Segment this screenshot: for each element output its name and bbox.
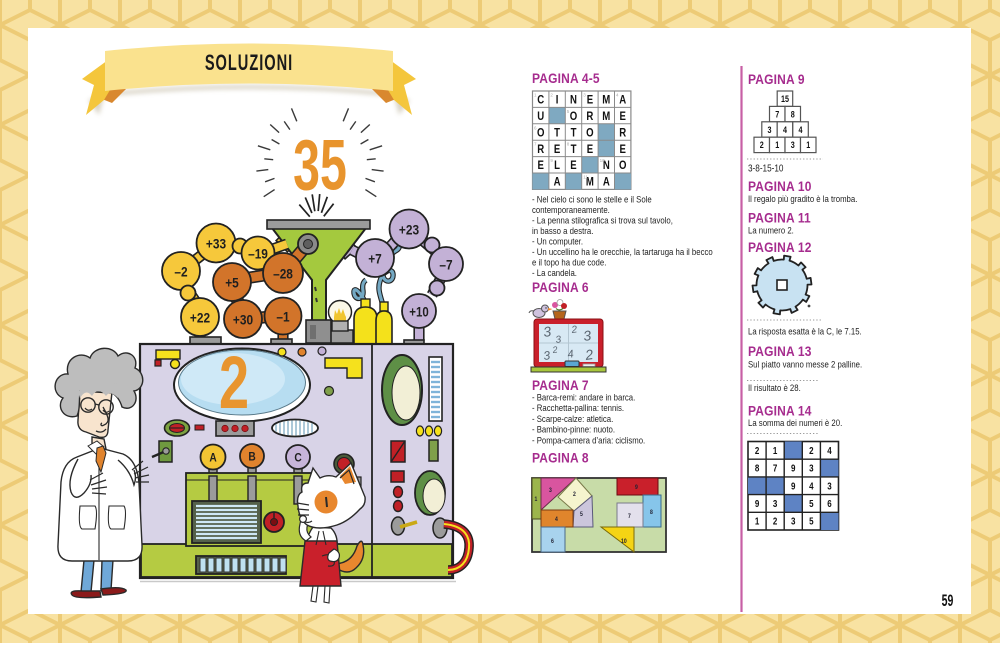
svg-text:PAGINA 8: PAGINA 8	[532, 450, 589, 466]
svg-text:PAGINA 10: PAGINA 10	[748, 178, 812, 194]
svg-text:- Pompa-camera d’aria: ciclism: - Pompa-camera d’aria: ciclismo.	[532, 435, 645, 446]
svg-text:A: A	[209, 452, 216, 465]
svg-text:PAGINA 9: PAGINA 9	[748, 71, 805, 87]
svg-text:U: U	[537, 110, 544, 123]
svg-text:8: 8	[791, 110, 795, 120]
svg-text:1: 1	[535, 497, 538, 503]
svg-text:2: 2	[773, 516, 777, 527]
svg-text:3: 3	[549, 488, 552, 494]
svg-text:- Un computer.: - Un computer.	[532, 236, 583, 247]
svg-text:+22: +22	[190, 310, 210, 326]
svg-text:E: E	[537, 159, 543, 172]
svg-text:PAGINA 13: PAGINA 13	[748, 343, 812, 359]
svg-text:4: 4	[809, 480, 813, 491]
svg-text:PAGINA 12: PAGINA 12	[748, 239, 812, 255]
svg-text:R: R	[537, 143, 544, 156]
svg-text:1: 1	[775, 140, 779, 150]
svg-text:1: 1	[755, 516, 759, 527]
svg-text:+5: +5	[225, 275, 239, 291]
svg-text:O: O	[586, 126, 593, 139]
svg-text:+33: +33	[206, 236, 226, 252]
svg-text:PAGINA 4-5: PAGINA 4-5	[532, 70, 600, 86]
svg-text:- La penna stilografica si tro: - La penna stilografica si trova sul tav…	[532, 215, 673, 226]
svg-text:E: E	[570, 159, 576, 172]
svg-text:- Barca-remi: andare in barca.: - Barca-remi: andare in barca.	[532, 392, 635, 403]
svg-text:in basso a destra.: in basso a destra.	[532, 225, 593, 236]
svg-text:2: 2	[219, 341, 249, 424]
svg-text:O: O	[619, 159, 626, 172]
svg-text:B: B	[248, 451, 255, 464]
svg-text:5: 5	[809, 516, 813, 527]
svg-text:9: 9	[755, 498, 759, 509]
svg-text:4: 4	[827, 445, 831, 456]
svg-text:- Un uccellino ha le orecchie,: - Un uccellino ha le orecchie, la tartar…	[532, 246, 713, 257]
svg-text:e il topo ha due code.: e il topo ha due code.	[532, 257, 606, 268]
svg-text:7: 7	[628, 514, 631, 520]
svg-text:R: R	[586, 110, 593, 123]
svg-text:T: T	[571, 126, 577, 139]
svg-text:- La candela.: - La candela.	[532, 267, 577, 278]
svg-text:Sul piatto vanno messe 2 palli: Sul piatto vanno messe 2 palline.	[748, 359, 862, 370]
svg-text:2: 2	[760, 140, 764, 150]
svg-text:9: 9	[791, 463, 795, 474]
svg-text:–1: –1	[276, 309, 289, 325]
svg-text:E: E	[619, 143, 625, 156]
svg-text:8: 8	[755, 463, 759, 474]
svg-text:2: 2	[809, 445, 813, 456]
svg-text:3: 3	[791, 140, 795, 150]
svg-text:La numero 2.: La numero 2.	[748, 225, 794, 236]
svg-text:- Racchetta-pallina: tennis.: - Racchetta-pallina: tennis.	[532, 402, 624, 413]
svg-text:5: 5	[580, 512, 583, 518]
svg-text:3: 3	[767, 125, 771, 135]
svg-text:9: 9	[791, 480, 795, 491]
svg-text:E: E	[554, 143, 560, 156]
svg-text:6: 6	[551, 539, 554, 545]
svg-text:3: 3	[773, 498, 777, 509]
svg-text:5: 5	[809, 498, 813, 509]
svg-text:O: O	[570, 110, 577, 123]
svg-text:15: 15	[781, 94, 789, 104]
svg-text:7: 7	[775, 110, 779, 120]
svg-text:59: 59	[942, 590, 954, 609]
svg-text:La risposta esatta è la C, le: La risposta esatta è la C, le 7.15.	[748, 326, 862, 337]
svg-text:2: 2	[573, 492, 576, 498]
svg-text:I: I	[556, 94, 559, 107]
svg-text:A: A	[603, 176, 610, 189]
svg-text:R: R	[619, 126, 626, 139]
svg-text:M: M	[602, 94, 610, 107]
svg-text:N: N	[570, 94, 577, 107]
svg-text:E: E	[619, 110, 625, 123]
svg-text:–28: –28	[273, 266, 293, 282]
svg-text:35: 35	[293, 125, 347, 205]
svg-text:Il regalo più gradito è la tro: Il regalo più gradito è la tromba.	[748, 193, 857, 204]
svg-text:3: 3	[827, 480, 831, 491]
svg-text:E: E	[587, 94, 593, 107]
svg-text:+23: +23	[399, 222, 419, 238]
svg-text:1: 1	[773, 445, 777, 456]
svg-text:11: 11	[583, 175, 588, 180]
svg-text:9: 9	[635, 485, 638, 491]
svg-text:C: C	[537, 94, 544, 107]
svg-text:4: 4	[798, 125, 802, 135]
svg-text:+10: +10	[409, 305, 428, 320]
svg-text:SOLUZIONI: SOLUZIONI	[205, 51, 293, 76]
svg-text:T: T	[571, 143, 577, 156]
svg-text:3-8-15-10: 3-8-15-10	[748, 163, 783, 174]
svg-text:3: 3	[791, 516, 795, 527]
svg-text:6: 6	[827, 498, 831, 509]
svg-text:8: 8	[650, 510, 653, 516]
svg-text:10: 10	[621, 539, 627, 545]
svg-text:A: A	[619, 94, 626, 107]
svg-text:–2: –2	[174, 264, 187, 280]
svg-text:L: L	[554, 159, 560, 172]
svg-text:T: T	[554, 126, 560, 139]
svg-text:+30: +30	[233, 312, 253, 328]
svg-text:–7: –7	[439, 257, 452, 273]
svg-text:O: O	[537, 126, 544, 139]
svg-text:M: M	[602, 110, 610, 123]
svg-text:2: 2	[755, 445, 759, 456]
svg-text:4: 4	[783, 125, 787, 135]
svg-text:–19: –19	[248, 246, 268, 262]
svg-text:E: E	[587, 143, 593, 156]
svg-text:- Nel cielo ci sono le stelle: - Nel cielo ci sono le stelle e il Sole	[532, 194, 652, 205]
svg-text:10: 10	[600, 158, 606, 163]
svg-text:- Scarpe-calze: atletica.: - Scarpe-calze: atletica.	[532, 413, 613, 424]
svg-text:+7: +7	[368, 251, 382, 267]
svg-text:Il risultato è 28.: Il risultato è 28.	[748, 382, 801, 393]
svg-text:7: 7	[773, 463, 777, 474]
svg-text:1: 1	[806, 140, 810, 150]
svg-text:contemporaneamente.: contemporaneamente.	[532, 204, 610, 215]
svg-text:A: A	[554, 176, 561, 189]
svg-text:C: C	[294, 452, 301, 465]
svg-text:3: 3	[809, 463, 813, 474]
svg-text:La somma dei numeri è 20.: La somma dei numeri è 20.	[748, 417, 842, 428]
svg-text:PAGINA 6: PAGINA 6	[532, 279, 589, 295]
svg-text:PAGINA 11: PAGINA 11	[748, 210, 811, 226]
svg-text:- Bambino-pinne: nuoto.: - Bambino-pinne: nuoto.	[532, 424, 615, 435]
